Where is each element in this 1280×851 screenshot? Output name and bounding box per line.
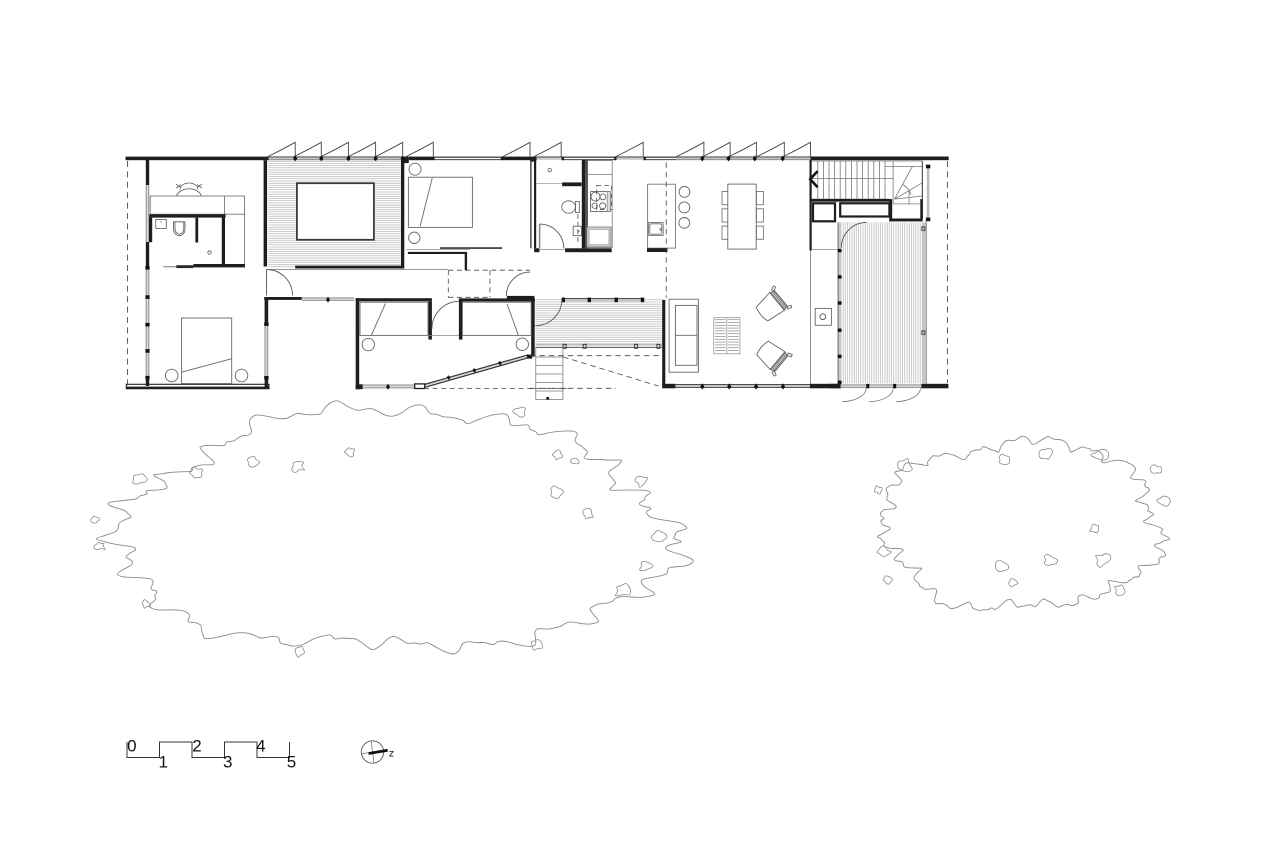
svg-text:0: 0	[127, 737, 136, 756]
svg-text:2: 2	[192, 737, 201, 756]
svg-text:z: z	[389, 748, 394, 760]
svg-text:1: 1	[158, 753, 167, 772]
svg-text:5: 5	[287, 753, 296, 772]
svg-text:3: 3	[223, 753, 232, 772]
svg-text:4: 4	[256, 737, 265, 756]
